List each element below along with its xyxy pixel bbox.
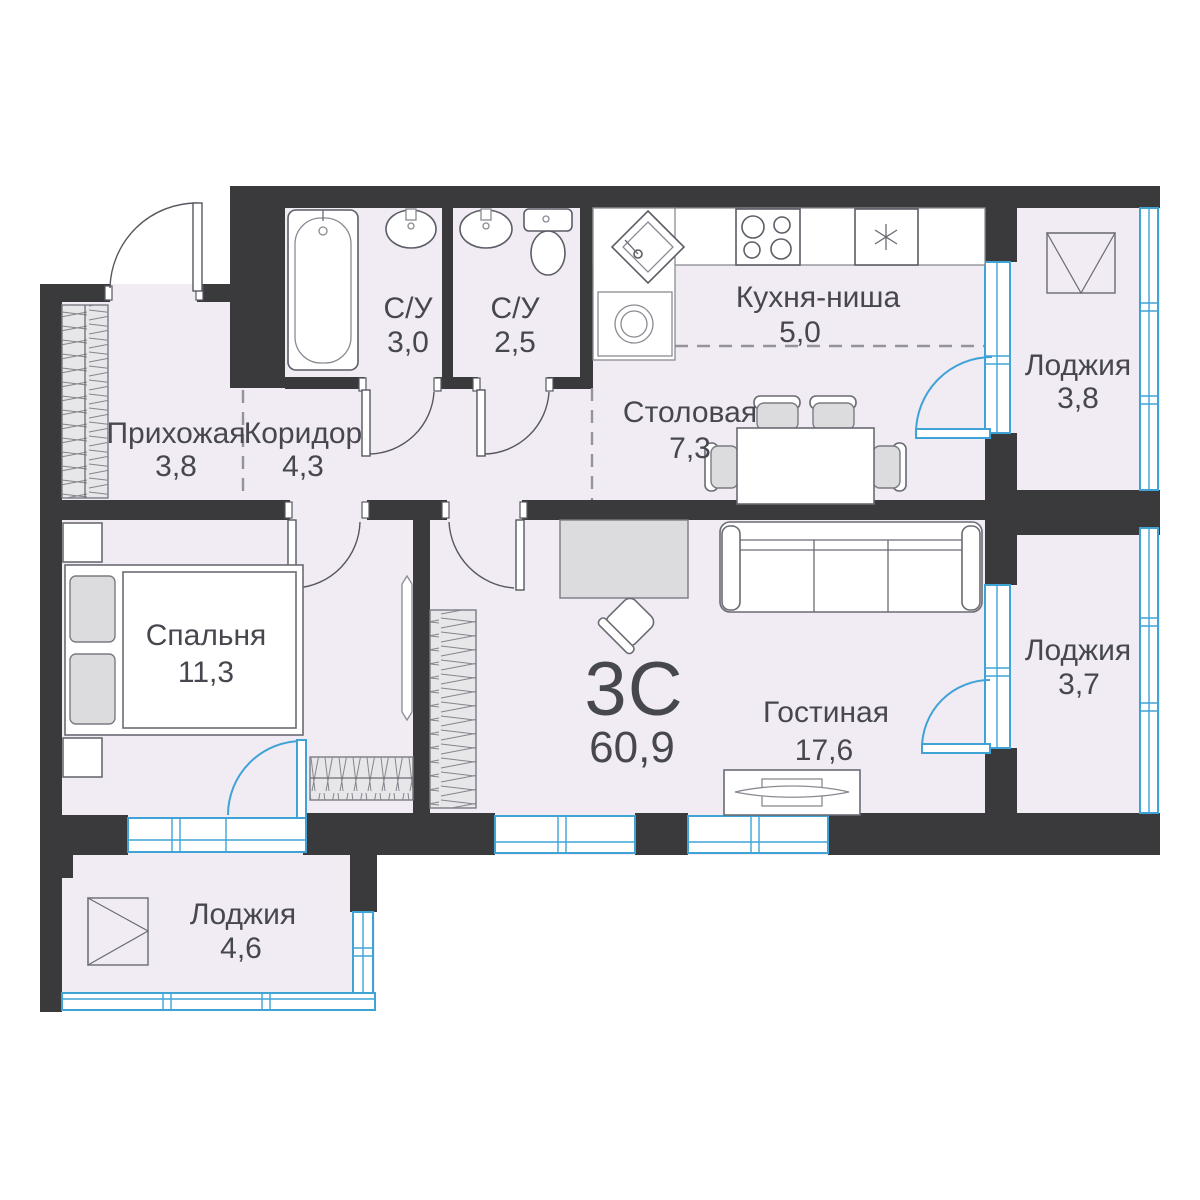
loggia-right-name: Лоджия [1025, 634, 1131, 667]
tv-stand [724, 770, 860, 815]
loggia-top-name: Лоджия [1025, 349, 1131, 382]
window-living-2 [688, 816, 828, 853]
plan-title: 3С 60,9 [584, 647, 683, 772]
washer-icon [598, 292, 672, 356]
apartment-type-label: 3С [584, 647, 683, 732]
window-living-1 [495, 816, 635, 853]
loggia-right-area: 3,7 [1058, 668, 1100, 701]
window-loggia-right [1140, 528, 1158, 813]
fridge-icon [855, 209, 918, 265]
window-bedroom [128, 818, 306, 852]
pillow [70, 654, 115, 724]
dining-name: Столовая [623, 396, 757, 429]
corridor-name: Коридор [244, 417, 362, 450]
room-label-bathroom-1: С/У 3,0 [383, 292, 433, 359]
hallway-area: 3,8 [155, 450, 197, 483]
loggia-top-area: 3,8 [1057, 382, 1099, 415]
living-area: 17,6 [795, 734, 853, 767]
bathroom-1-area: 3,0 [387, 326, 429, 359]
sofa [720, 522, 982, 612]
dining-chair [810, 396, 856, 430]
window-living-balcony [985, 585, 1010, 748]
nightstand [63, 523, 102, 562]
apartment-total-area: 60,9 [589, 723, 675, 772]
floorplan-page: Прихожая 3,8 Коридор 4,3 С/У 3,0 С/У 2,5… [0, 0, 1200, 1200]
kitchen-area: 5,0 [779, 316, 821, 349]
window-loggia-top [1140, 208, 1158, 490]
sink-icon-bathroom-1 [386, 209, 436, 248]
corridor-area: 4,3 [282, 450, 324, 483]
bedroom-area: 11,3 [178, 656, 234, 689]
dining-chair [873, 443, 906, 491]
stove-icon [736, 209, 800, 265]
bathroom-1-name: С/У [383, 292, 433, 325]
window-kitchen-balcony [985, 262, 1010, 433]
bathroom-2-area: 2,5 [494, 326, 536, 359]
loggia-bottom-area: 4,6 [220, 932, 262, 965]
wardrobe-bedroom [310, 757, 413, 800]
loggia-bottom-name: Лоджия [190, 898, 296, 931]
mirror [402, 576, 412, 720]
dining-table [737, 428, 874, 504]
floor-plan-svg: Прихожая 3,8 Коридор 4,3 С/У 3,0 С/У 2,5… [0, 0, 1200, 1200]
hallway-name: Прихожая [106, 417, 245, 450]
dining-area: 7,3 [669, 432, 711, 465]
kitchen-name: Кухня-ниша [736, 281, 901, 314]
wardrobe-hallway [62, 305, 108, 498]
room-label-bathroom-2: С/У 2,5 [490, 292, 540, 359]
dining-chair [754, 396, 800, 430]
sink-icon-bathroom-2 [460, 209, 512, 248]
pillow [70, 576, 115, 642]
nightstand [63, 738, 102, 777]
bathroom-2-name: С/У [490, 292, 540, 325]
living-name: Гостиная [763, 696, 889, 729]
bathtub-icon [288, 210, 358, 370]
wardrobe-living [430, 610, 476, 808]
bedroom-name: Спальня [146, 619, 267, 652]
desk [560, 520, 688, 598]
